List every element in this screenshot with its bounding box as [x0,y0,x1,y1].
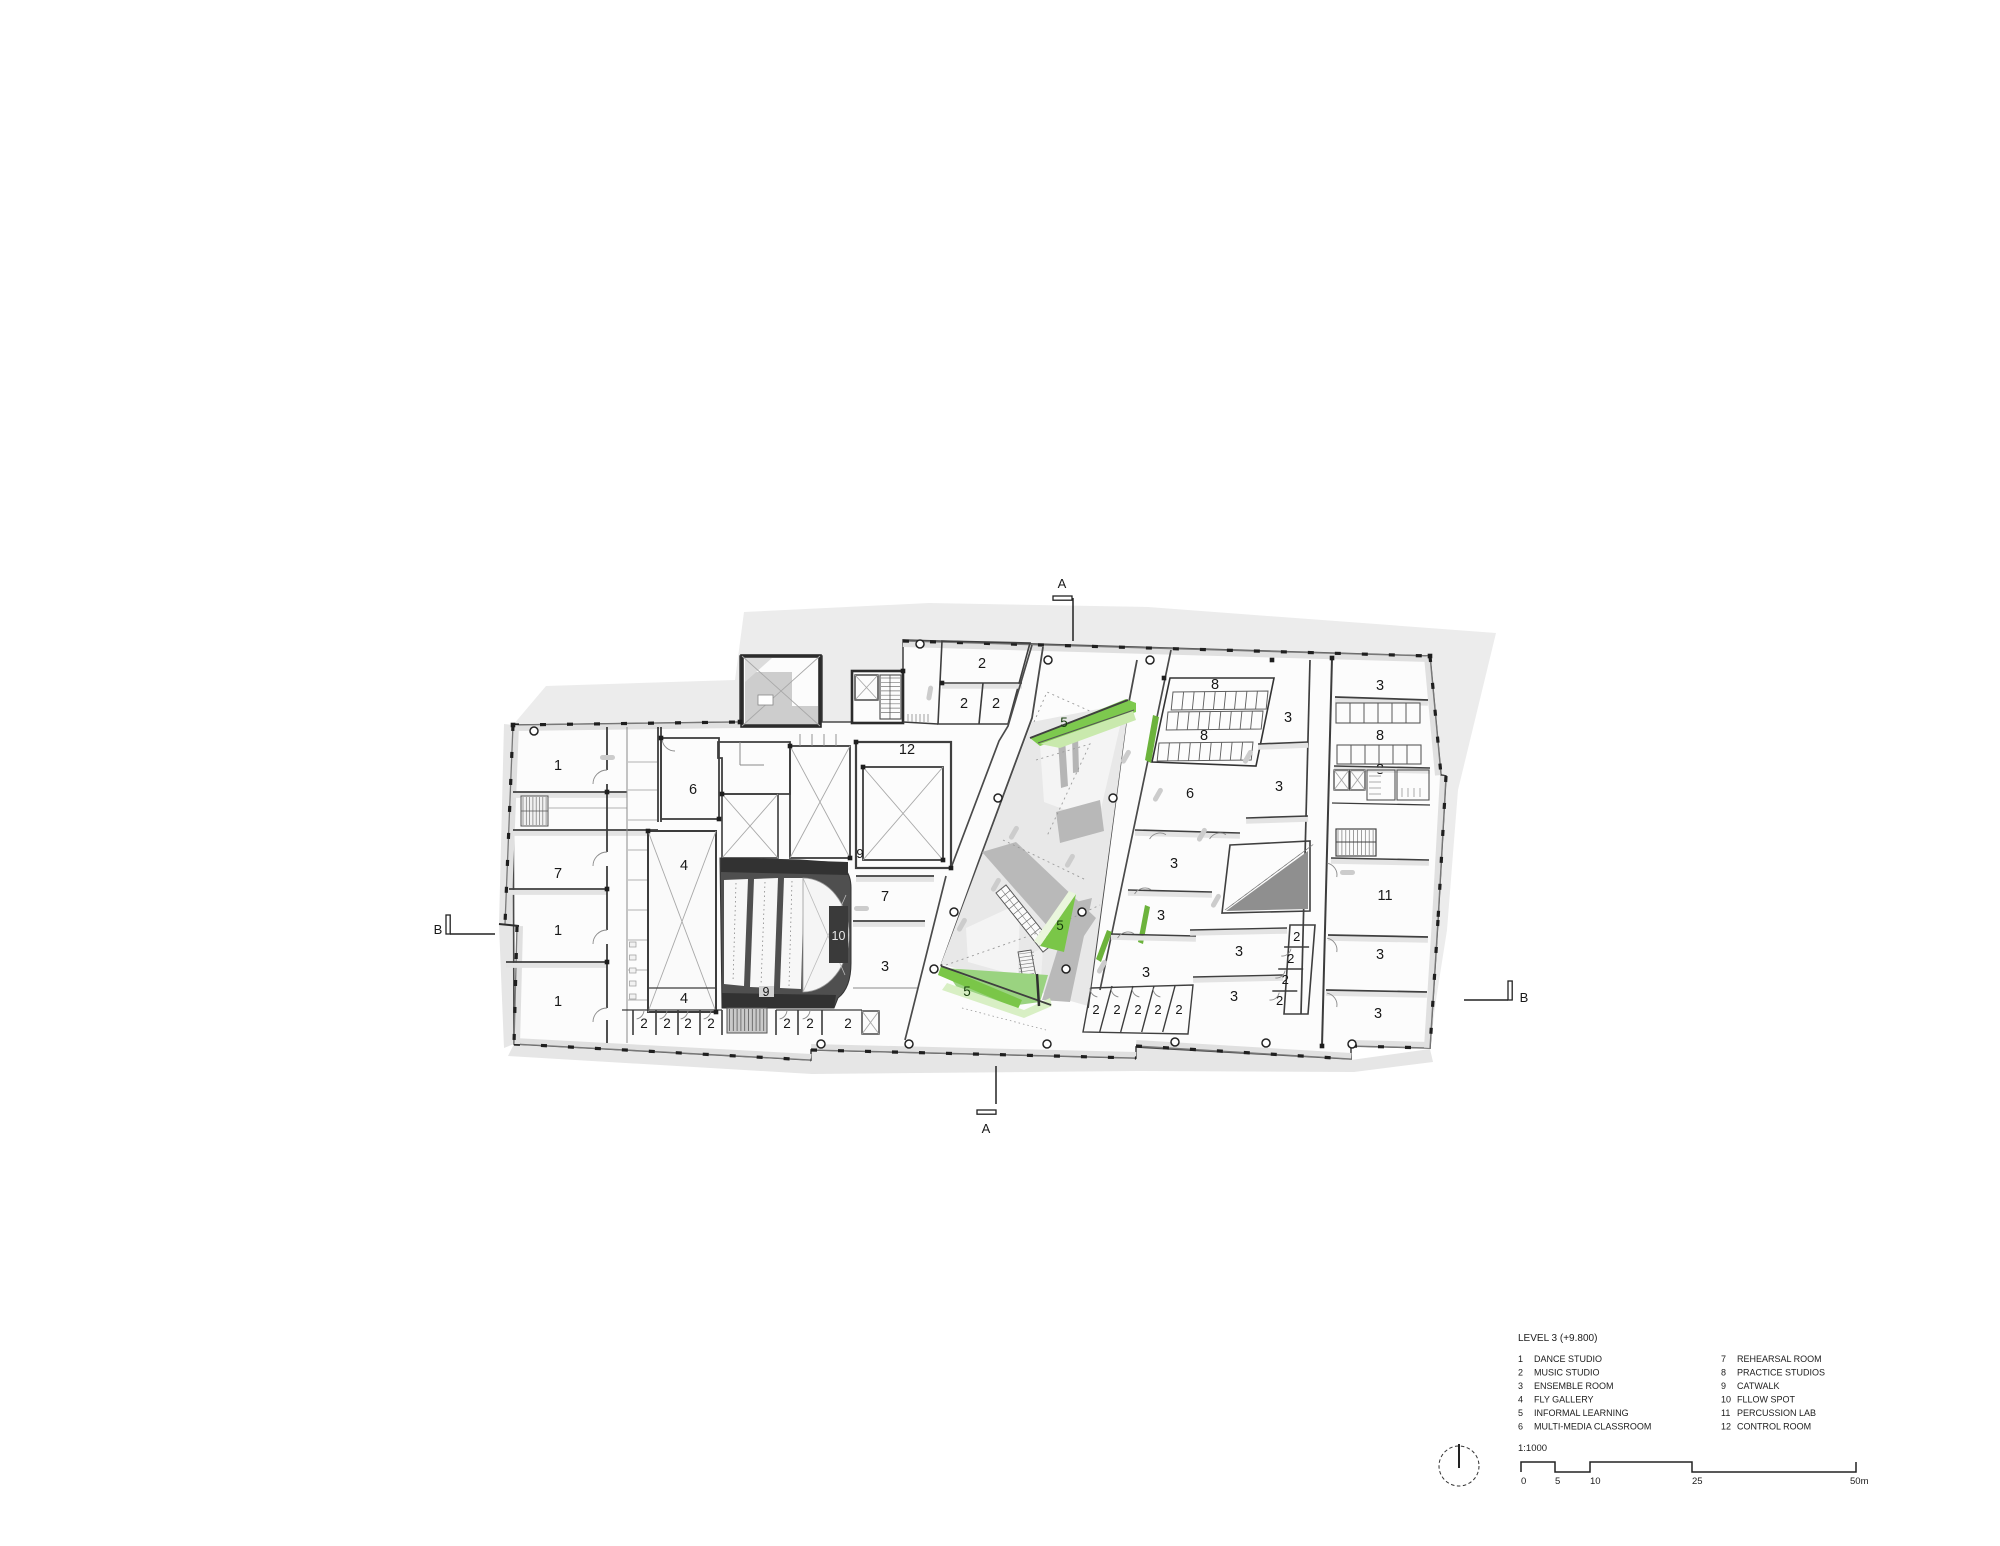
svg-text:4: 4 [680,991,688,1007]
svg-text:8: 8 [1376,728,1384,744]
svg-text:1: 1 [554,758,562,774]
svg-text:2: 2 [1113,1002,1120,1017]
svg-text:5: 5 [1060,715,1068,730]
svg-text:FLY GALLERY: FLY GALLERY [1534,1395,1594,1405]
svg-text:B: B [434,922,443,937]
svg-text:5: 5 [1056,918,1064,933]
svg-text:INFORMAL LEARNING: INFORMAL LEARNING [1534,1408,1629,1418]
svg-text:REHEARSAL ROOM: REHEARSAL ROOM [1737,1354,1822,1364]
svg-text:3: 3 [1518,1381,1523,1391]
svg-text:2: 2 [783,1016,791,1031]
svg-text:9: 9 [856,846,863,861]
svg-text:1: 1 [554,923,562,939]
svg-text:9: 9 [763,985,770,999]
svg-text:50m: 50m [1850,1476,1869,1487]
svg-text:2: 2 [1175,1002,1182,1017]
svg-text:25: 25 [1692,1476,1703,1487]
svg-text:3: 3 [1235,944,1243,960]
svg-text:ENSEMBLE ROOM: ENSEMBLE ROOM [1534,1381,1614,1391]
svg-text:10: 10 [832,929,846,943]
svg-text:1:1000: 1:1000 [1518,1443,1547,1454]
svg-text:6: 6 [1518,1422,1523,1432]
svg-text:3: 3 [1275,779,1283,795]
svg-text:12: 12 [1721,1422,1731,1432]
svg-text:5: 5 [963,984,971,999]
svg-text:12: 12 [899,742,915,758]
svg-text:DANCE STUDIO: DANCE STUDIO [1534,1354,1602,1364]
svg-text:2: 2 [1293,929,1300,944]
svg-text:7: 7 [881,889,889,905]
svg-text:6: 6 [1186,786,1194,802]
svg-text:3: 3 [1374,1006,1382,1022]
svg-text:4: 4 [1518,1395,1523,1405]
svg-text:A: A [982,1121,991,1136]
svg-text:3: 3 [1170,856,1178,872]
svg-text:5: 5 [1555,1476,1560,1487]
svg-text:2: 2 [1282,972,1289,987]
svg-text:2: 2 [1518,1368,1523,1378]
svg-text:CATWALK: CATWALK [1737,1381,1780,1391]
svg-text:2: 2 [806,1016,814,1031]
svg-text:8: 8 [1721,1368,1726,1378]
svg-text:2: 2 [1092,1002,1099,1017]
svg-text:1: 1 [554,994,562,1010]
svg-text:2: 2 [1276,993,1283,1008]
svg-text:3: 3 [1376,678,1384,694]
svg-text:8: 8 [1200,728,1208,744]
svg-text:LEVEL 3 (+9.800): LEVEL 3 (+9.800) [1518,1333,1597,1344]
svg-text:4: 4 [680,858,688,874]
svg-text:0: 0 [1521,1476,1526,1487]
svg-text:2: 2 [978,656,986,672]
svg-text:1: 1 [1518,1354,1523,1364]
svg-text:2: 2 [640,1016,648,1031]
svg-text:FLLOW SPOT: FLLOW SPOT [1737,1395,1796,1405]
svg-text:A: A [1058,576,1067,591]
svg-text:PERCUSSION LAB: PERCUSSION LAB [1737,1408,1816,1418]
svg-text:6: 6 [689,782,697,798]
svg-text:3: 3 [1142,965,1150,981]
svg-text:7: 7 [554,866,562,882]
svg-text:CONTROL ROOM: CONTROL ROOM [1737,1422,1811,1432]
svg-text:B: B [1520,990,1529,1005]
svg-text:5: 5 [1518,1408,1523,1418]
svg-text:3: 3 [1376,947,1384,963]
svg-text:MULTI-MEDIA CLASSROOM: MULTI-MEDIA CLASSROOM [1534,1422,1651,1432]
svg-text:2: 2 [684,1016,692,1031]
svg-text:2: 2 [844,1016,852,1031]
svg-text:3: 3 [881,959,889,975]
svg-text:3: 3 [1157,908,1165,924]
svg-text:2: 2 [707,1016,715,1031]
svg-text:3: 3 [1284,710,1292,726]
svg-text:11: 11 [1377,888,1392,904]
svg-text:7: 7 [1721,1354,1726,1364]
svg-text:9: 9 [1721,1381,1726,1391]
svg-text:3: 3 [1230,989,1238,1005]
svg-text:PRACTICE STUDIOS: PRACTICE STUDIOS [1737,1368,1825,1378]
svg-text:2: 2 [663,1016,671,1031]
svg-text:2: 2 [1154,1002,1161,1017]
svg-text:10: 10 [1721,1395,1731,1405]
svg-text:2: 2 [992,696,1000,712]
svg-text:MUSIC STUDIO: MUSIC STUDIO [1534,1368,1600,1378]
svg-text:2: 2 [960,696,968,712]
svg-text:2: 2 [1134,1002,1141,1017]
svg-text:10: 10 [1590,1476,1601,1487]
svg-text:8: 8 [1211,677,1219,693]
svg-text:11: 11 [1721,1408,1730,1418]
